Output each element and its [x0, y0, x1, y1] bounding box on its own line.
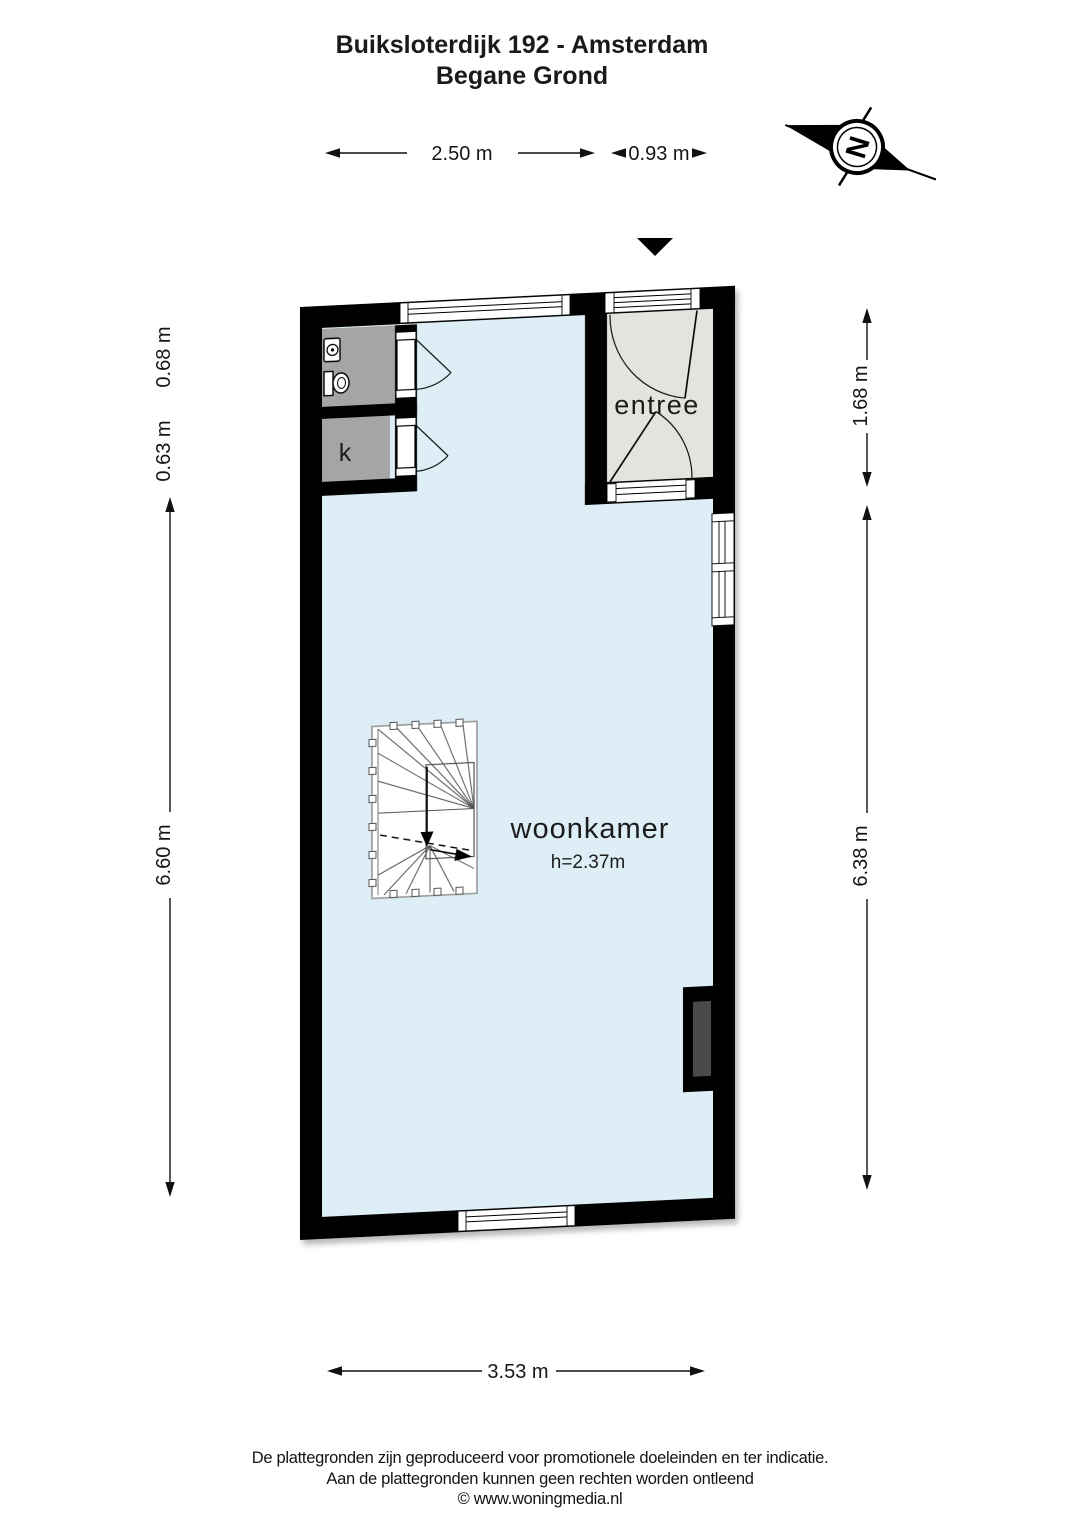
- dim-top-entree-label: 0.93 m: [628, 143, 689, 165]
- entree-label: entree: [614, 390, 700, 420]
- dim-top-main: 2.50 m: [325, 143, 595, 165]
- woonkamer-label: woonkamer: [510, 813, 670, 845]
- toilet-door-leaf: [397, 339, 415, 390]
- disclaimer: De plattegronden zijn geproduceerd voor …: [0, 1448, 1080, 1510]
- dim-left-room: 6.60 m: [153, 497, 175, 1197]
- dim-top-entree: 0.93 m: [611, 143, 707, 165]
- compass-rose-icon: N: [773, 85, 951, 212]
- disclaimer-line-1: De plattegronden zijn geproduceerd voor …: [0, 1448, 1080, 1469]
- dim-right-room-label: 6.38 m: [850, 825, 872, 886]
- dim-left-toilet-label: 0.68 m: [153, 326, 175, 387]
- entrance-marker-icon: [637, 238, 673, 256]
- disclaimer-copyright: © www.woningmedia.nl: [0, 1489, 1080, 1510]
- kast-door-leaf: [397, 425, 415, 468]
- chimney-flue: [693, 1001, 711, 1077]
- dim-right-entree: 1.68 m: [850, 308, 872, 487]
- floorplan: [300, 286, 735, 1240]
- floorplan-canvas: N: [0, 0, 1080, 1528]
- dim-right-entree-label: 1.68 m: [850, 365, 872, 426]
- staircase: [369, 718, 477, 898]
- kast-floor: [322, 416, 390, 482]
- dim-right-room: 6.38 m: [850, 505, 872, 1190]
- woonkamer-height-label: h=2.37m: [551, 852, 625, 873]
- dim-left-room-label: 6.60 m: [153, 824, 175, 885]
- dim-bottom: 3.53 m: [327, 1361, 705, 1383]
- entree-left-wall: [585, 292, 607, 505]
- disclaimer-line-2: Aan de plattegronden kunnen geen rechten…: [0, 1469, 1080, 1490]
- dim-left-kast-label: 0.63 m: [153, 420, 175, 481]
- toilet-icon: [324, 371, 349, 396]
- sink-icon: [324, 338, 340, 362]
- kast-label: k: [339, 439, 352, 467]
- dim-top-main-label: 2.50 m: [431, 143, 492, 165]
- window-right: [712, 513, 734, 626]
- dim-bottom-label: 3.53 m: [487, 1361, 548, 1383]
